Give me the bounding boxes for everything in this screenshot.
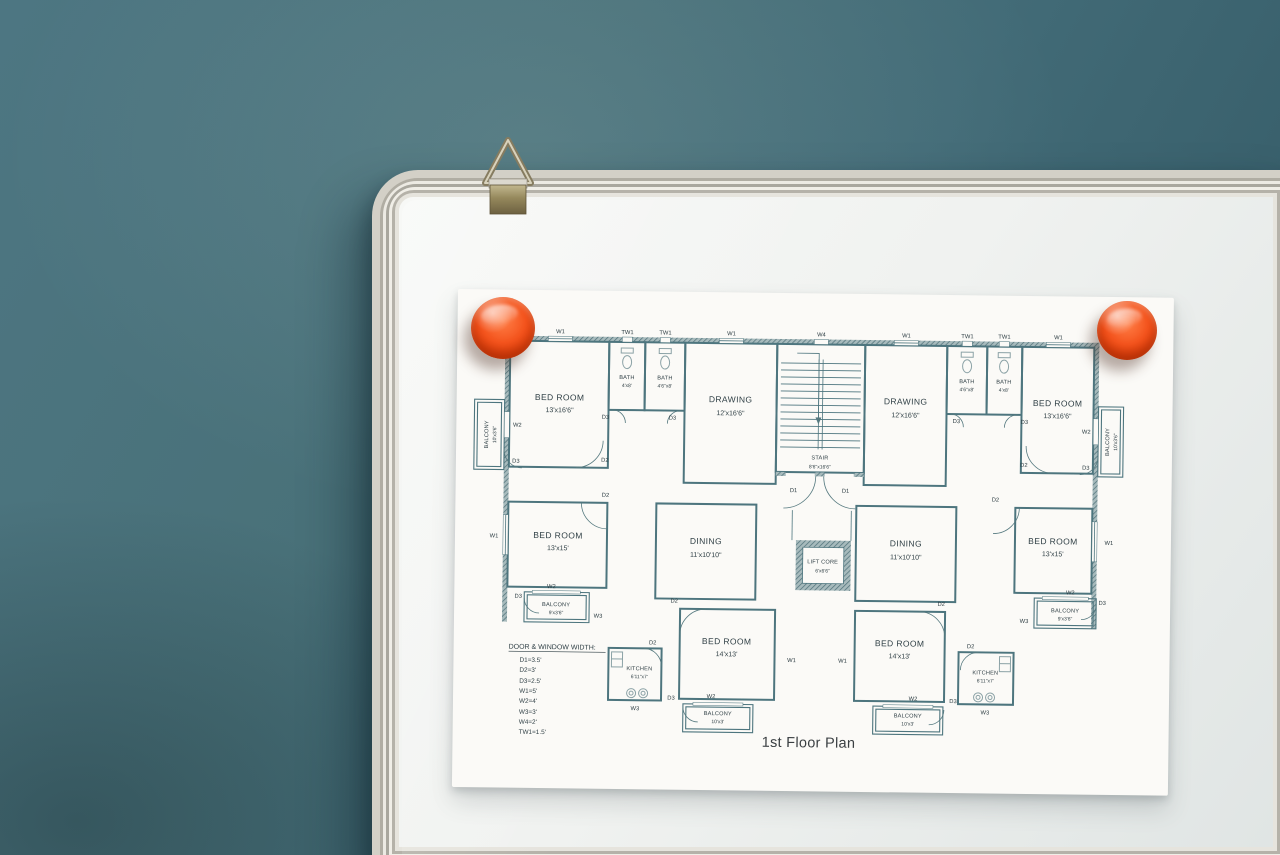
svg-text:TW1: TW1: [998, 335, 1010, 341]
svg-text:W3: W3: [980, 710, 989, 716]
legend-item: D2=3': [519, 667, 536, 674]
room-dims: 11'x10'10": [890, 554, 922, 561]
svg-text:D3: D3: [602, 415, 609, 421]
legend-item: W4=2': [519, 719, 537, 726]
hook-ring: [485, 140, 531, 183]
svg-text:W1: W1: [556, 329, 565, 335]
svg-text:D2: D2: [992, 498, 999, 504]
room-dims: 4'x8': [622, 383, 632, 389]
room-label: KITCHEN: [626, 666, 652, 672]
room-bedroom-tr: [1021, 347, 1095, 474]
room-dims: 13'x15': [547, 545, 569, 552]
svg-text:D3: D3: [953, 419, 960, 425]
room-dims: 9'x3'6": [549, 610, 564, 616]
svg-text:D3: D3: [949, 699, 956, 705]
hanging-hook: [476, 132, 540, 220]
svg-text:D3: D3: [1082, 466, 1089, 472]
room-label: BALCONY: [542, 602, 570, 608]
legend-item: W1=5': [519, 688, 537, 695]
svg-text:W2: W2: [513, 423, 522, 429]
plan-title: 1st Floor Plan: [762, 735, 856, 752]
room-dims: 10'x3'6": [1113, 433, 1119, 451]
room-balcony-br: [873, 706, 943, 735]
svg-text:TW1: TW1: [621, 330, 633, 336]
room-dims: 10'x3': [901, 721, 914, 727]
svg-text:D2: D2: [670, 599, 677, 605]
svg-text:D2: D2: [602, 493, 609, 499]
room-dims: 11'x10'10": [690, 552, 722, 559]
entrance-lobby: [775, 472, 864, 541]
room-dims: 4'6"x8': [959, 387, 974, 393]
svg-text:W1: W1: [1105, 541, 1114, 547]
room-dims: 6'x6'6": [815, 568, 830, 574]
svg-text:W1: W1: [490, 533, 499, 539]
svg-text:W1: W1: [1054, 335, 1063, 341]
room-label: DINING: [890, 538, 922, 548]
floor-plan-paper: BED ROOM 13'x16'6" BED ROOM 13'x16'6" BA…: [452, 289, 1174, 796]
svg-text:D3: D3: [667, 696, 674, 702]
svg-text:D1: D1: [842, 489, 849, 495]
legend-title: DOOR & WINDOW WIDTH:: [509, 644, 596, 652]
svg-text:W2: W2: [707, 694, 716, 700]
magnet-right: [1097, 301, 1157, 360]
svg-text:W1: W1: [902, 333, 911, 339]
svg-text:W3: W3: [630, 706, 639, 712]
room-label: DRAWING: [709, 394, 753, 405]
legend-item: W3=3': [519, 709, 537, 716]
photo-scene: BED ROOM 13'x16'6" BED ROOM 13'x16'6" BA…: [0, 0, 1280, 855]
room-dims: 6'11"x7': [977, 678, 994, 684]
svg-text:D2: D2: [1020, 463, 1027, 469]
room-dims: 4'x8': [999, 388, 1009, 394]
svg-text:D2: D2: [601, 458, 608, 464]
svg-text:D1: D1: [790, 488, 797, 494]
room-label: BED ROOM: [1028, 536, 1078, 547]
svg-text:W1: W1: [838, 659, 847, 665]
svg-text:W1: W1: [727, 331, 736, 337]
room-label: BED ROOM: [533, 530, 583, 541]
svg-text:D3: D3: [669, 416, 676, 422]
room-label: LIFT CORE: [807, 559, 838, 565]
room-label: DRAWING: [884, 396, 928, 407]
svg-text:W4: W4: [817, 332, 827, 338]
room-label: BATH: [996, 380, 1011, 386]
svg-text:W3: W3: [594, 614, 603, 620]
room-label: BALCONY: [894, 713, 922, 719]
room-label: BED ROOM: [702, 636, 752, 647]
whiteboard: BED ROOM 13'x16'6" BED ROOM 13'x16'6" BA…: [372, 170, 1280, 855]
room-label: BATH: [959, 379, 974, 385]
svg-text:D3: D3: [514, 594, 521, 600]
room-label: KITCHEN: [972, 670, 998, 676]
room-dims: 14'x13': [716, 651, 738, 658]
svg-text:W2: W2: [909, 697, 918, 703]
legend-item: TW1=1.5': [519, 729, 546, 736]
svg-text:D2: D2: [967, 644, 974, 650]
room-balcony-bl: [683, 704, 753, 733]
hook-ring-highlight: [485, 140, 531, 183]
room-dims: 13'x16'6": [1043, 413, 1072, 420]
floor-plan-drawing: BED ROOM 13'x16'6" BED ROOM 13'x16'6" BA…: [460, 319, 1145, 757]
room-bedroom-tl: [509, 341, 610, 468]
svg-text:D2: D2: [937, 602, 944, 608]
svg-text:D2: D2: [649, 640, 656, 646]
room-label: BED ROOM: [875, 638, 925, 649]
stair-treads: [780, 353, 861, 450]
legend-item: W2=4': [519, 698, 537, 705]
hook-bracket: [490, 185, 526, 214]
room-dims: 10'x3': [711, 719, 724, 725]
room-label: BALCONY: [1105, 428, 1111, 456]
room-dims: 13'x15': [1042, 551, 1064, 558]
svg-text:W2: W2: [1082, 430, 1091, 436]
room-label: BED ROOM: [1033, 398, 1083, 409]
room-label: STAIR: [811, 455, 828, 461]
svg-text:W3: W3: [1020, 619, 1029, 625]
room-dims: 4'6"x8': [658, 383, 673, 389]
room-label: BALCONY: [484, 420, 490, 448]
room-label: DINING: [690, 536, 722, 546]
svg-text:W2: W2: [1066, 590, 1075, 596]
legend-item: D3=2.5': [519, 678, 541, 685]
legend: DOOR & WINDOW WIDTH: D1=3.5' D2=3' D3=2.…: [508, 644, 606, 737]
room-dims: 13'x16'6": [545, 407, 574, 414]
room-label: BED ROOM: [535, 392, 585, 403]
svg-text:D3: D3: [1098, 601, 1105, 607]
svg-text:D3: D3: [512, 459, 519, 465]
room-label: BALCONY: [704, 711, 732, 717]
room-label: BATH: [619, 375, 634, 381]
room-dims: 10'x3'6": [492, 426, 498, 444]
room-dims: 12'x16'6": [716, 410, 745, 417]
bath-fixtures: [621, 348, 1010, 373]
legend-item: D1=3.5': [519, 657, 541, 664]
room-dims: 14'x13': [889, 653, 911, 660]
room-dims: 6'11"x7': [631, 674, 648, 680]
room-label: BATH: [657, 375, 672, 381]
svg-text:TW1: TW1: [659, 330, 671, 336]
room-dims: 12'x16'6": [891, 412, 920, 419]
svg-text:W1: W1: [787, 658, 796, 664]
room-dims: 8'6"x16'6": [809, 464, 831, 470]
room-dims: 9'x3'6": [1058, 616, 1073, 622]
room-label: BALCONY: [1051, 608, 1079, 614]
svg-text:D3: D3: [1021, 420, 1028, 426]
svg-text:W2: W2: [547, 584, 556, 590]
svg-text:TW1: TW1: [961, 334, 973, 340]
magnet-left: [471, 297, 535, 359]
